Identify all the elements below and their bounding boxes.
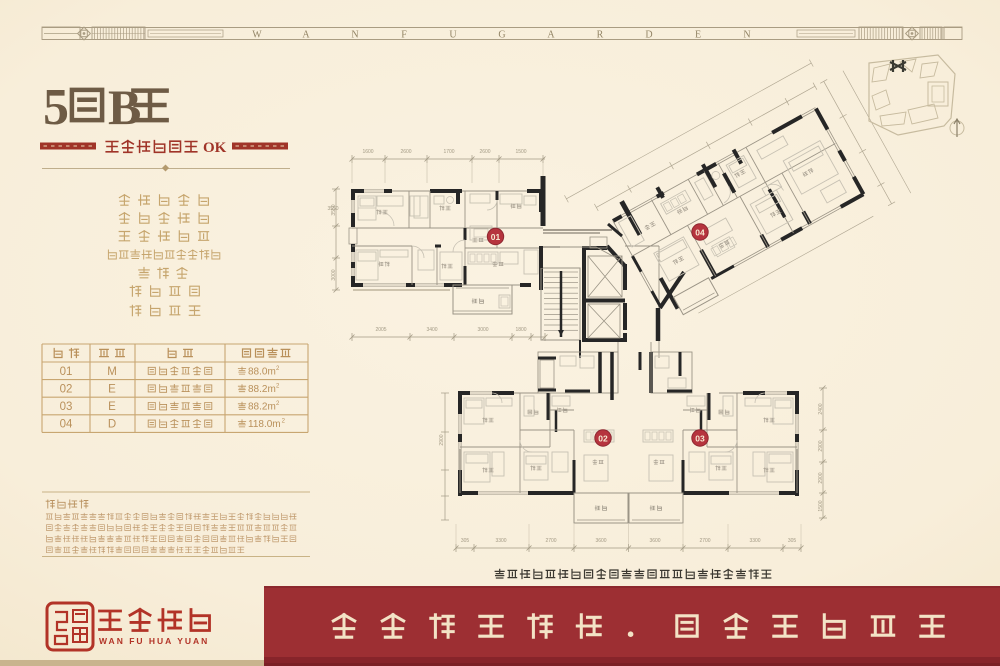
svg-text:U: U <box>449 30 457 41</box>
svg-text:3400: 3400 <box>426 327 437 333</box>
svg-text:118.0m: 118.0m <box>248 419 281 430</box>
svg-text:D: D <box>645 30 652 41</box>
svg-text:2005: 2005 <box>375 327 386 333</box>
svg-text:03: 03 <box>695 434 705 444</box>
svg-text:3550: 3550 <box>331 204 337 215</box>
svg-text:N: N <box>351 30 358 41</box>
svg-text:M: M <box>107 366 117 378</box>
svg-text:02: 02 <box>598 434 608 444</box>
svg-text:04: 04 <box>60 419 73 431</box>
svg-text:N: N <box>743 30 750 41</box>
svg-text:E: E <box>108 383 116 395</box>
svg-text:2900: 2900 <box>439 434 445 445</box>
svg-text:2900: 2900 <box>818 440 824 451</box>
svg-text:2400: 2400 <box>818 403 824 414</box>
svg-text:305: 305 <box>461 538 470 544</box>
svg-text:3600: 3600 <box>595 538 606 544</box>
svg-text:5: 5 <box>43 79 69 136</box>
svg-text:2: 2 <box>282 419 286 425</box>
svg-text:E: E <box>695 30 701 41</box>
svg-text:2: 2 <box>276 401 280 407</box>
svg-text:F: F <box>401 30 407 41</box>
svg-text:2600: 2600 <box>400 149 411 155</box>
svg-text:1800: 1800 <box>515 327 526 333</box>
svg-text:3300: 3300 <box>495 538 506 544</box>
svg-text:2700: 2700 <box>699 538 710 544</box>
svg-text:88.2m: 88.2m <box>248 402 276 413</box>
svg-text:1700: 1700 <box>443 149 454 155</box>
svg-text:03: 03 <box>60 401 73 413</box>
svg-text:3600: 3600 <box>649 538 660 544</box>
svg-text:A: A <box>547 30 555 41</box>
svg-text:OK: OK <box>203 140 227 156</box>
svg-text:3300: 3300 <box>749 538 760 544</box>
svg-text:1600: 1600 <box>362 149 373 155</box>
svg-text:2: 2 <box>276 366 280 372</box>
svg-text:01: 01 <box>491 232 501 242</box>
svg-text:R: R <box>597 30 604 41</box>
svg-text:E: E <box>108 401 116 413</box>
svg-text:2700: 2700 <box>545 538 556 544</box>
svg-text:W: W <box>252 30 262 41</box>
svg-text:2900: 2900 <box>818 472 824 483</box>
svg-text:A: A <box>302 30 310 41</box>
svg-text:04: 04 <box>695 228 705 238</box>
svg-text:D: D <box>108 419 116 431</box>
svg-text:88.0m: 88.0m <box>248 366 276 377</box>
svg-text:305: 305 <box>788 538 797 544</box>
svg-text:02: 02 <box>60 383 73 395</box>
svg-text:2: 2 <box>276 383 280 389</box>
svg-text:1500: 1500 <box>818 500 824 511</box>
svg-text:1500: 1500 <box>515 149 526 155</box>
svg-text:3000: 3000 <box>477 327 488 333</box>
svg-text:3000: 3000 <box>331 269 337 280</box>
svg-text:2600: 2600 <box>479 149 490 155</box>
svg-text:88.2m: 88.2m <box>248 384 276 395</box>
svg-text:01: 01 <box>60 366 73 378</box>
svg-text:WAN FU HUA YUAN: WAN FU HUA YUAN <box>99 636 209 646</box>
svg-text:G: G <box>498 30 505 41</box>
